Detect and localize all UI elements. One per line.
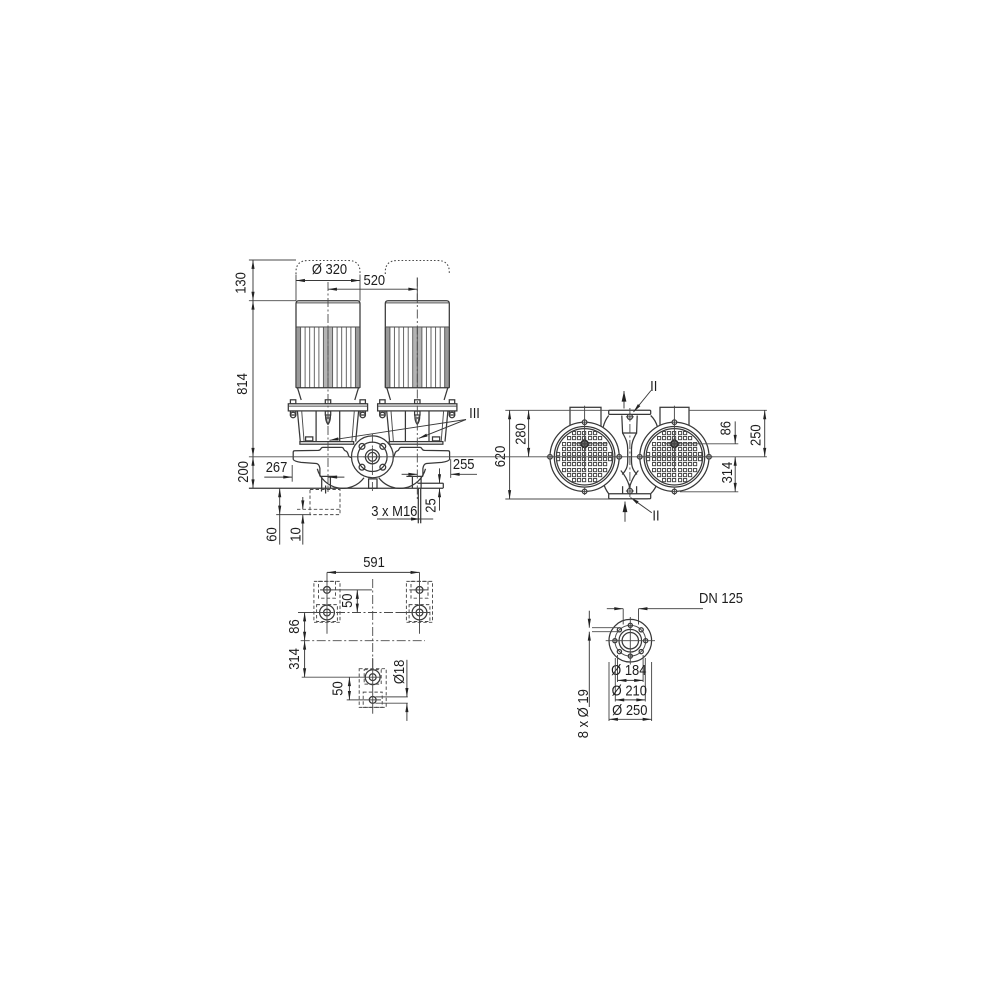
- svg-text:Ø 320: Ø 320: [312, 261, 347, 278]
- svg-text:Ø 184: Ø 184: [611, 662, 646, 679]
- svg-text:267: 267: [266, 459, 288, 476]
- svg-text:814: 814: [234, 373, 251, 395]
- svg-text:280: 280: [513, 423, 530, 445]
- svg-text:Ø18: Ø18: [391, 660, 408, 685]
- svg-text:86: 86: [286, 619, 303, 633]
- svg-text:8 x Ø 19: 8 x Ø 19: [575, 689, 592, 738]
- svg-text:314: 314: [286, 648, 303, 670]
- svg-text:50: 50: [329, 681, 346, 695]
- svg-text:130: 130: [232, 272, 249, 294]
- svg-text:3 x M16: 3 x M16: [371, 503, 417, 520]
- svg-text:591: 591: [363, 554, 385, 571]
- svg-text:III: III: [469, 405, 480, 422]
- svg-text:Ø 210: Ø 210: [612, 683, 647, 700]
- svg-text:520: 520: [364, 272, 386, 289]
- svg-text:255: 255: [453, 456, 475, 473]
- svg-text:DN 125: DN 125: [699, 590, 743, 607]
- svg-text:250: 250: [747, 424, 764, 446]
- svg-text:86: 86: [718, 421, 735, 435]
- svg-text:25: 25: [422, 498, 439, 512]
- svg-text:Ø 250: Ø 250: [612, 702, 647, 719]
- svg-text:50: 50: [339, 594, 356, 608]
- svg-text:60: 60: [264, 527, 281, 541]
- svg-text:200: 200: [235, 461, 252, 483]
- svg-text:10: 10: [287, 527, 304, 541]
- svg-text:314: 314: [719, 462, 736, 484]
- svg-text:II: II: [652, 508, 659, 525]
- svg-text:II: II: [650, 378, 657, 395]
